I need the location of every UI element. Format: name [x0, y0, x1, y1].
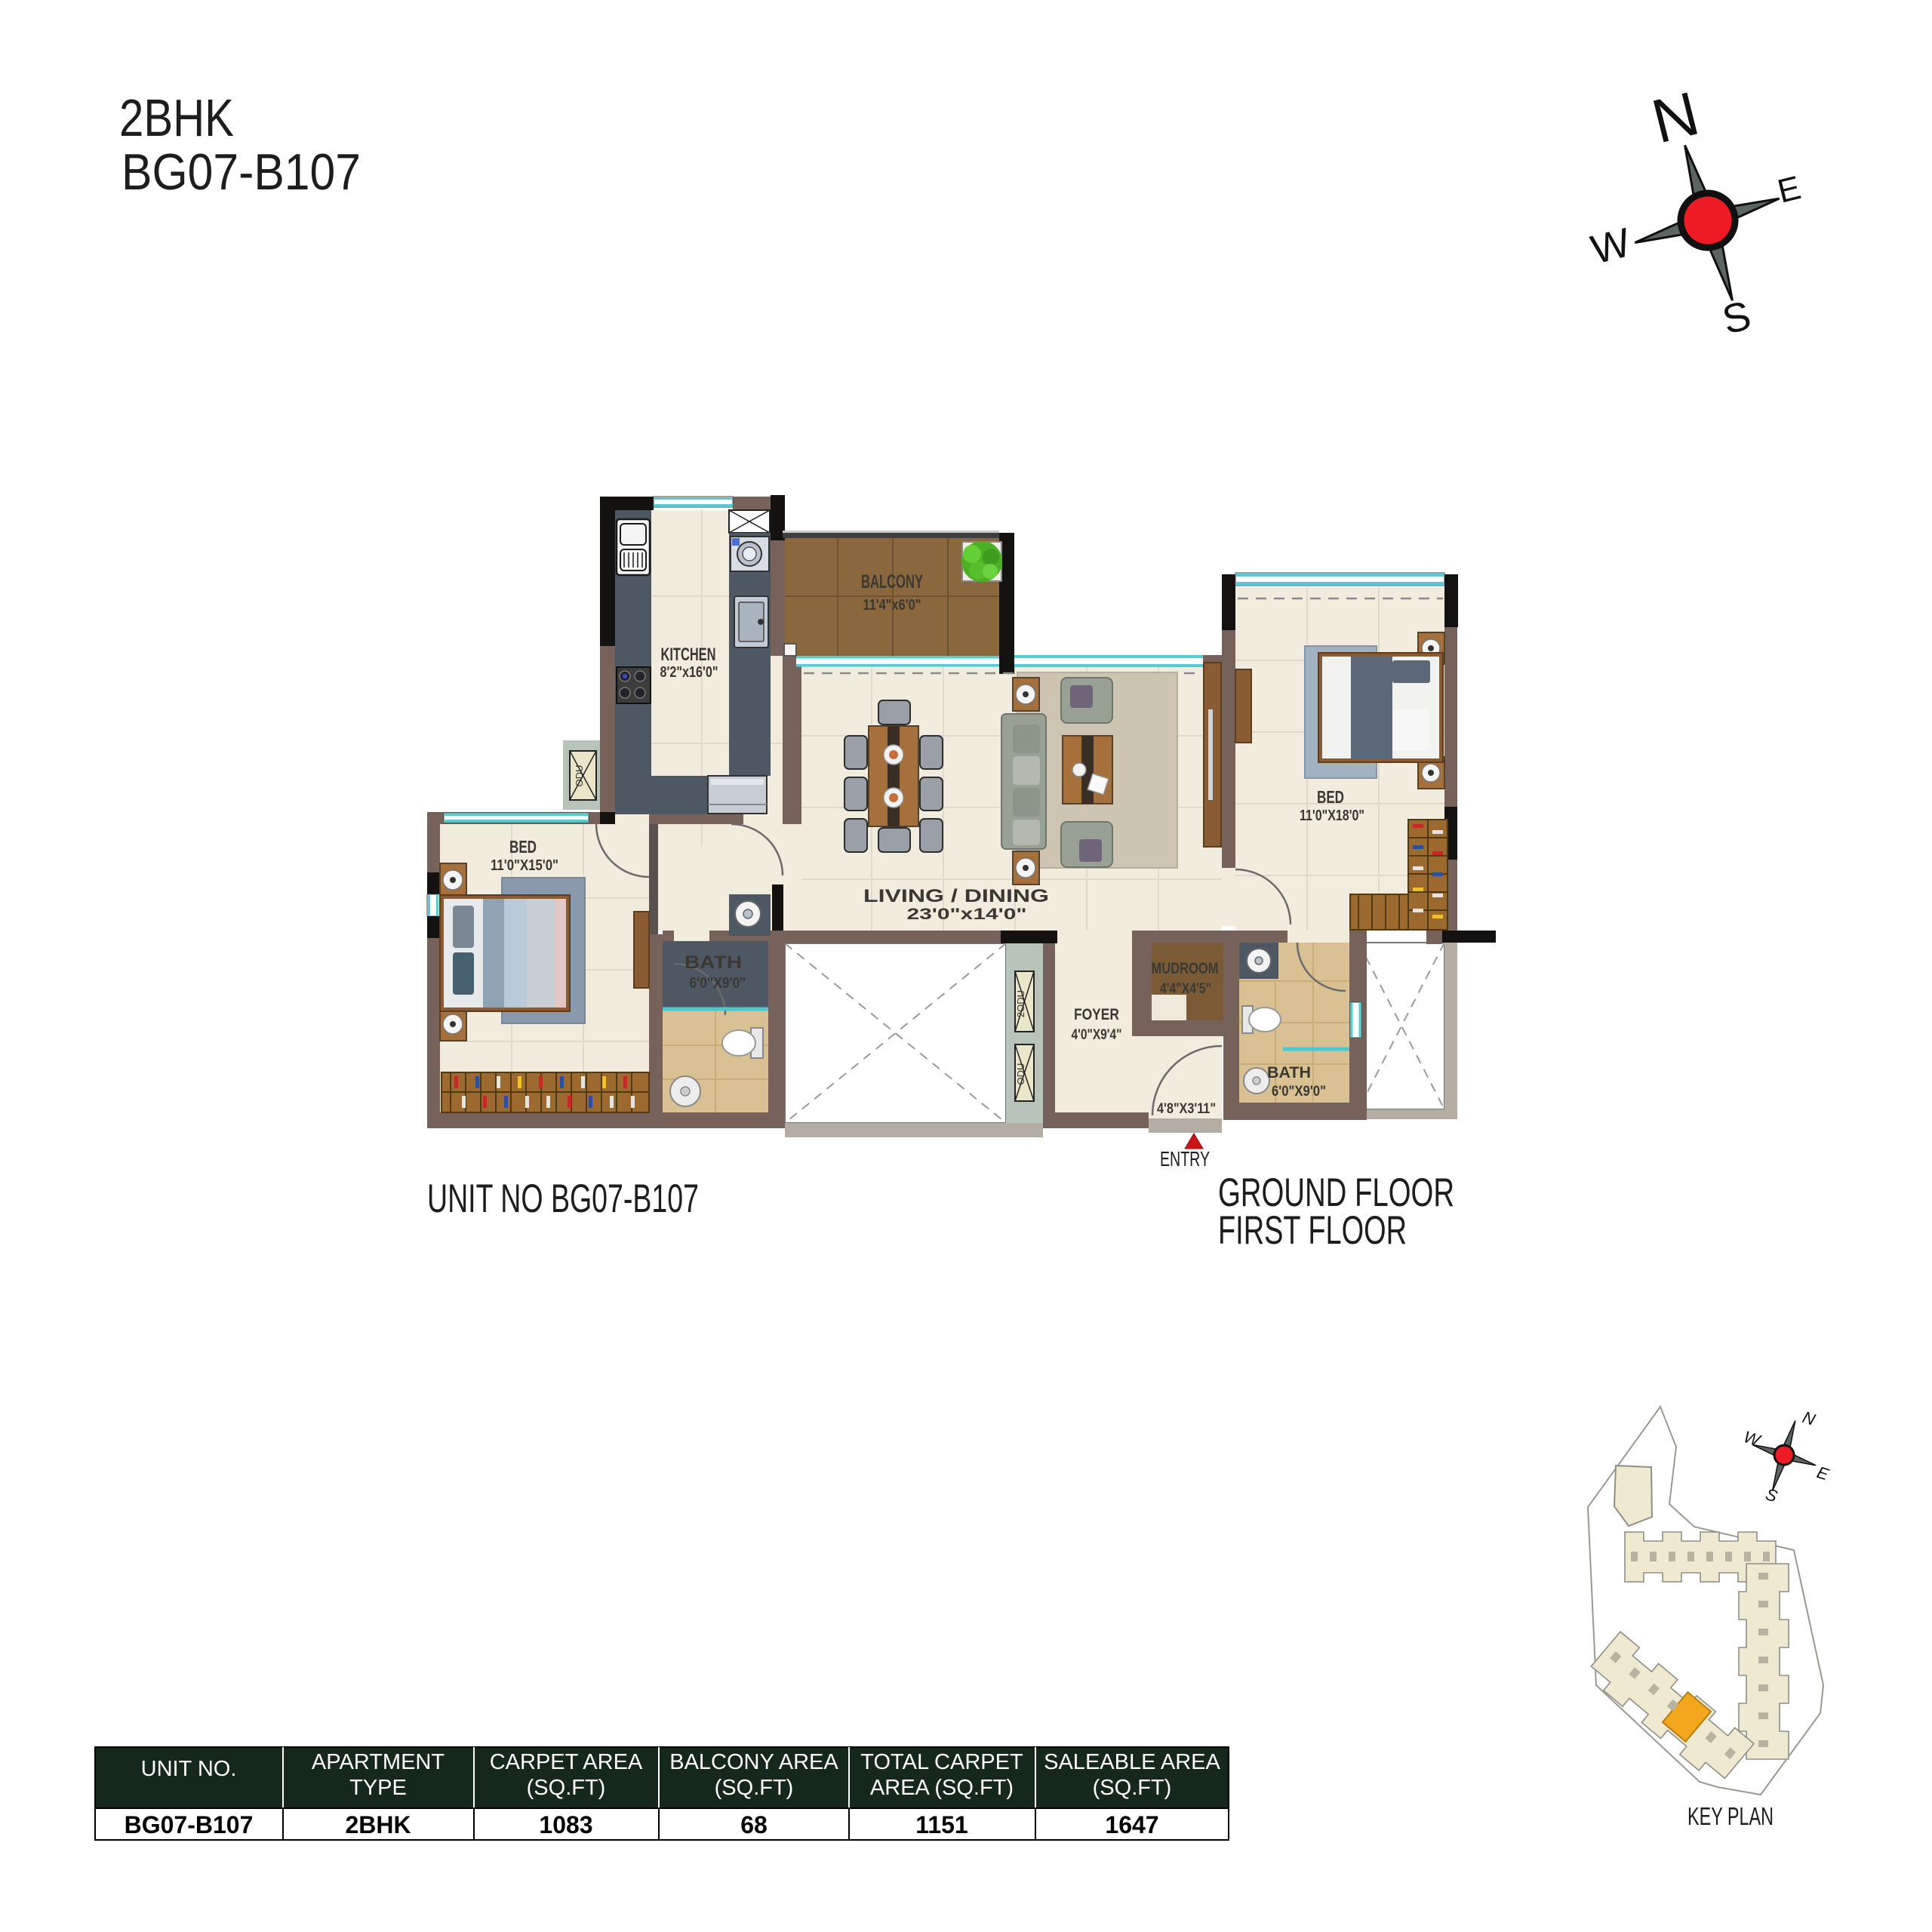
svg-text:4'0"X9'4": 4'0"X9'4" — [1072, 1027, 1122, 1043]
svg-text:1083: 1083 — [539, 1811, 592, 1838]
svg-text:UNIT NO.: UNIT NO. — [141, 1757, 237, 1781]
svg-text:KEY PLAN: KEY PLAN — [1687, 1802, 1774, 1830]
svg-text:BG07-B107: BG07-B107 — [125, 1811, 254, 1838]
svg-text:8'2"x16'0": 8'2"x16'0" — [660, 664, 718, 681]
svg-text:ODU: ODU — [1015, 1063, 1026, 1085]
svg-text:23'0"x14'0": 23'0"x14'0" — [907, 906, 1027, 923]
svg-text:BALCONY AREA: BALCONY AREA — [669, 1750, 838, 1774]
svg-text:TYPE: TYPE — [349, 1776, 407, 1800]
svg-text:FIRST FLOOR: FIRST FLOOR — [1218, 1208, 1407, 1253]
svg-text:(SQ.FT): (SQ.FT) — [1093, 1776, 1172, 1800]
svg-text:BED: BED — [1317, 787, 1344, 807]
svg-text:BATH: BATH — [685, 952, 742, 973]
svg-text:KITCHEN: KITCHEN — [661, 645, 716, 665]
svg-text:1151: 1151 — [915, 1811, 968, 1838]
svg-text:6'0"X9'0": 6'0"X9'0" — [1272, 1084, 1326, 1100]
svg-text:11'4"x6'0": 11'4"x6'0" — [863, 597, 921, 614]
svg-text:ENTRY: ENTRY — [1160, 1147, 1210, 1171]
svg-text:11'0"X18'0": 11'0"X18'0" — [1300, 808, 1364, 824]
svg-text:BATH: BATH — [1267, 1064, 1311, 1081]
svg-text:APARTMENT: APARTMENT — [312, 1750, 445, 1774]
svg-text:1647: 1647 — [1105, 1811, 1158, 1838]
svg-text:UNIT NO BG07-B107: UNIT NO BG07-B107 — [427, 1177, 699, 1221]
svg-text:4'8"X3'11": 4'8"X3'11" — [1157, 1101, 1216, 1117]
svg-text:TOTAL CARPET: TOTAL CARPET — [860, 1750, 1023, 1774]
svg-text:BED: BED — [509, 837, 537, 857]
svg-text:BG07-B107: BG07-B107 — [122, 143, 361, 201]
svg-text:AREA (SQ.FT): AREA (SQ.FT) — [870, 1776, 1014, 1800]
svg-text:MUDROOM: MUDROOM — [1152, 960, 1219, 977]
svg-text:(SQ.FT): (SQ.FT) — [715, 1776, 794, 1800]
svg-text:6'0"X9'0": 6'0"X9'0" — [690, 975, 746, 992]
svg-text:11'0"X15'0": 11'0"X15'0" — [491, 857, 558, 874]
svg-text:2BHK: 2BHK — [119, 88, 234, 147]
svg-text:SALEABLE AREA: SALEABLE AREA — [1044, 1750, 1220, 1774]
svg-text:CARPET AREA: CARPET AREA — [490, 1750, 643, 1774]
svg-text:ODU: ODU — [574, 765, 585, 787]
svg-text:LIVING / DINING: LIVING / DINING — [863, 886, 1049, 906]
svg-text:FOYER: FOYER — [1074, 1006, 1119, 1023]
svg-text:(SQ.FT): (SQ.FT) — [527, 1776, 606, 1800]
svg-text:BALCONY: BALCONY — [861, 571, 923, 592]
svg-text:68: 68 — [740, 1811, 768, 1838]
svg-text:2BHK: 2BHK — [345, 1811, 411, 1838]
svg-text:4'4"X4'5": 4'4"X4'5" — [1160, 981, 1211, 997]
svg-text:2ODU: 2ODU — [1015, 990, 1026, 1017]
